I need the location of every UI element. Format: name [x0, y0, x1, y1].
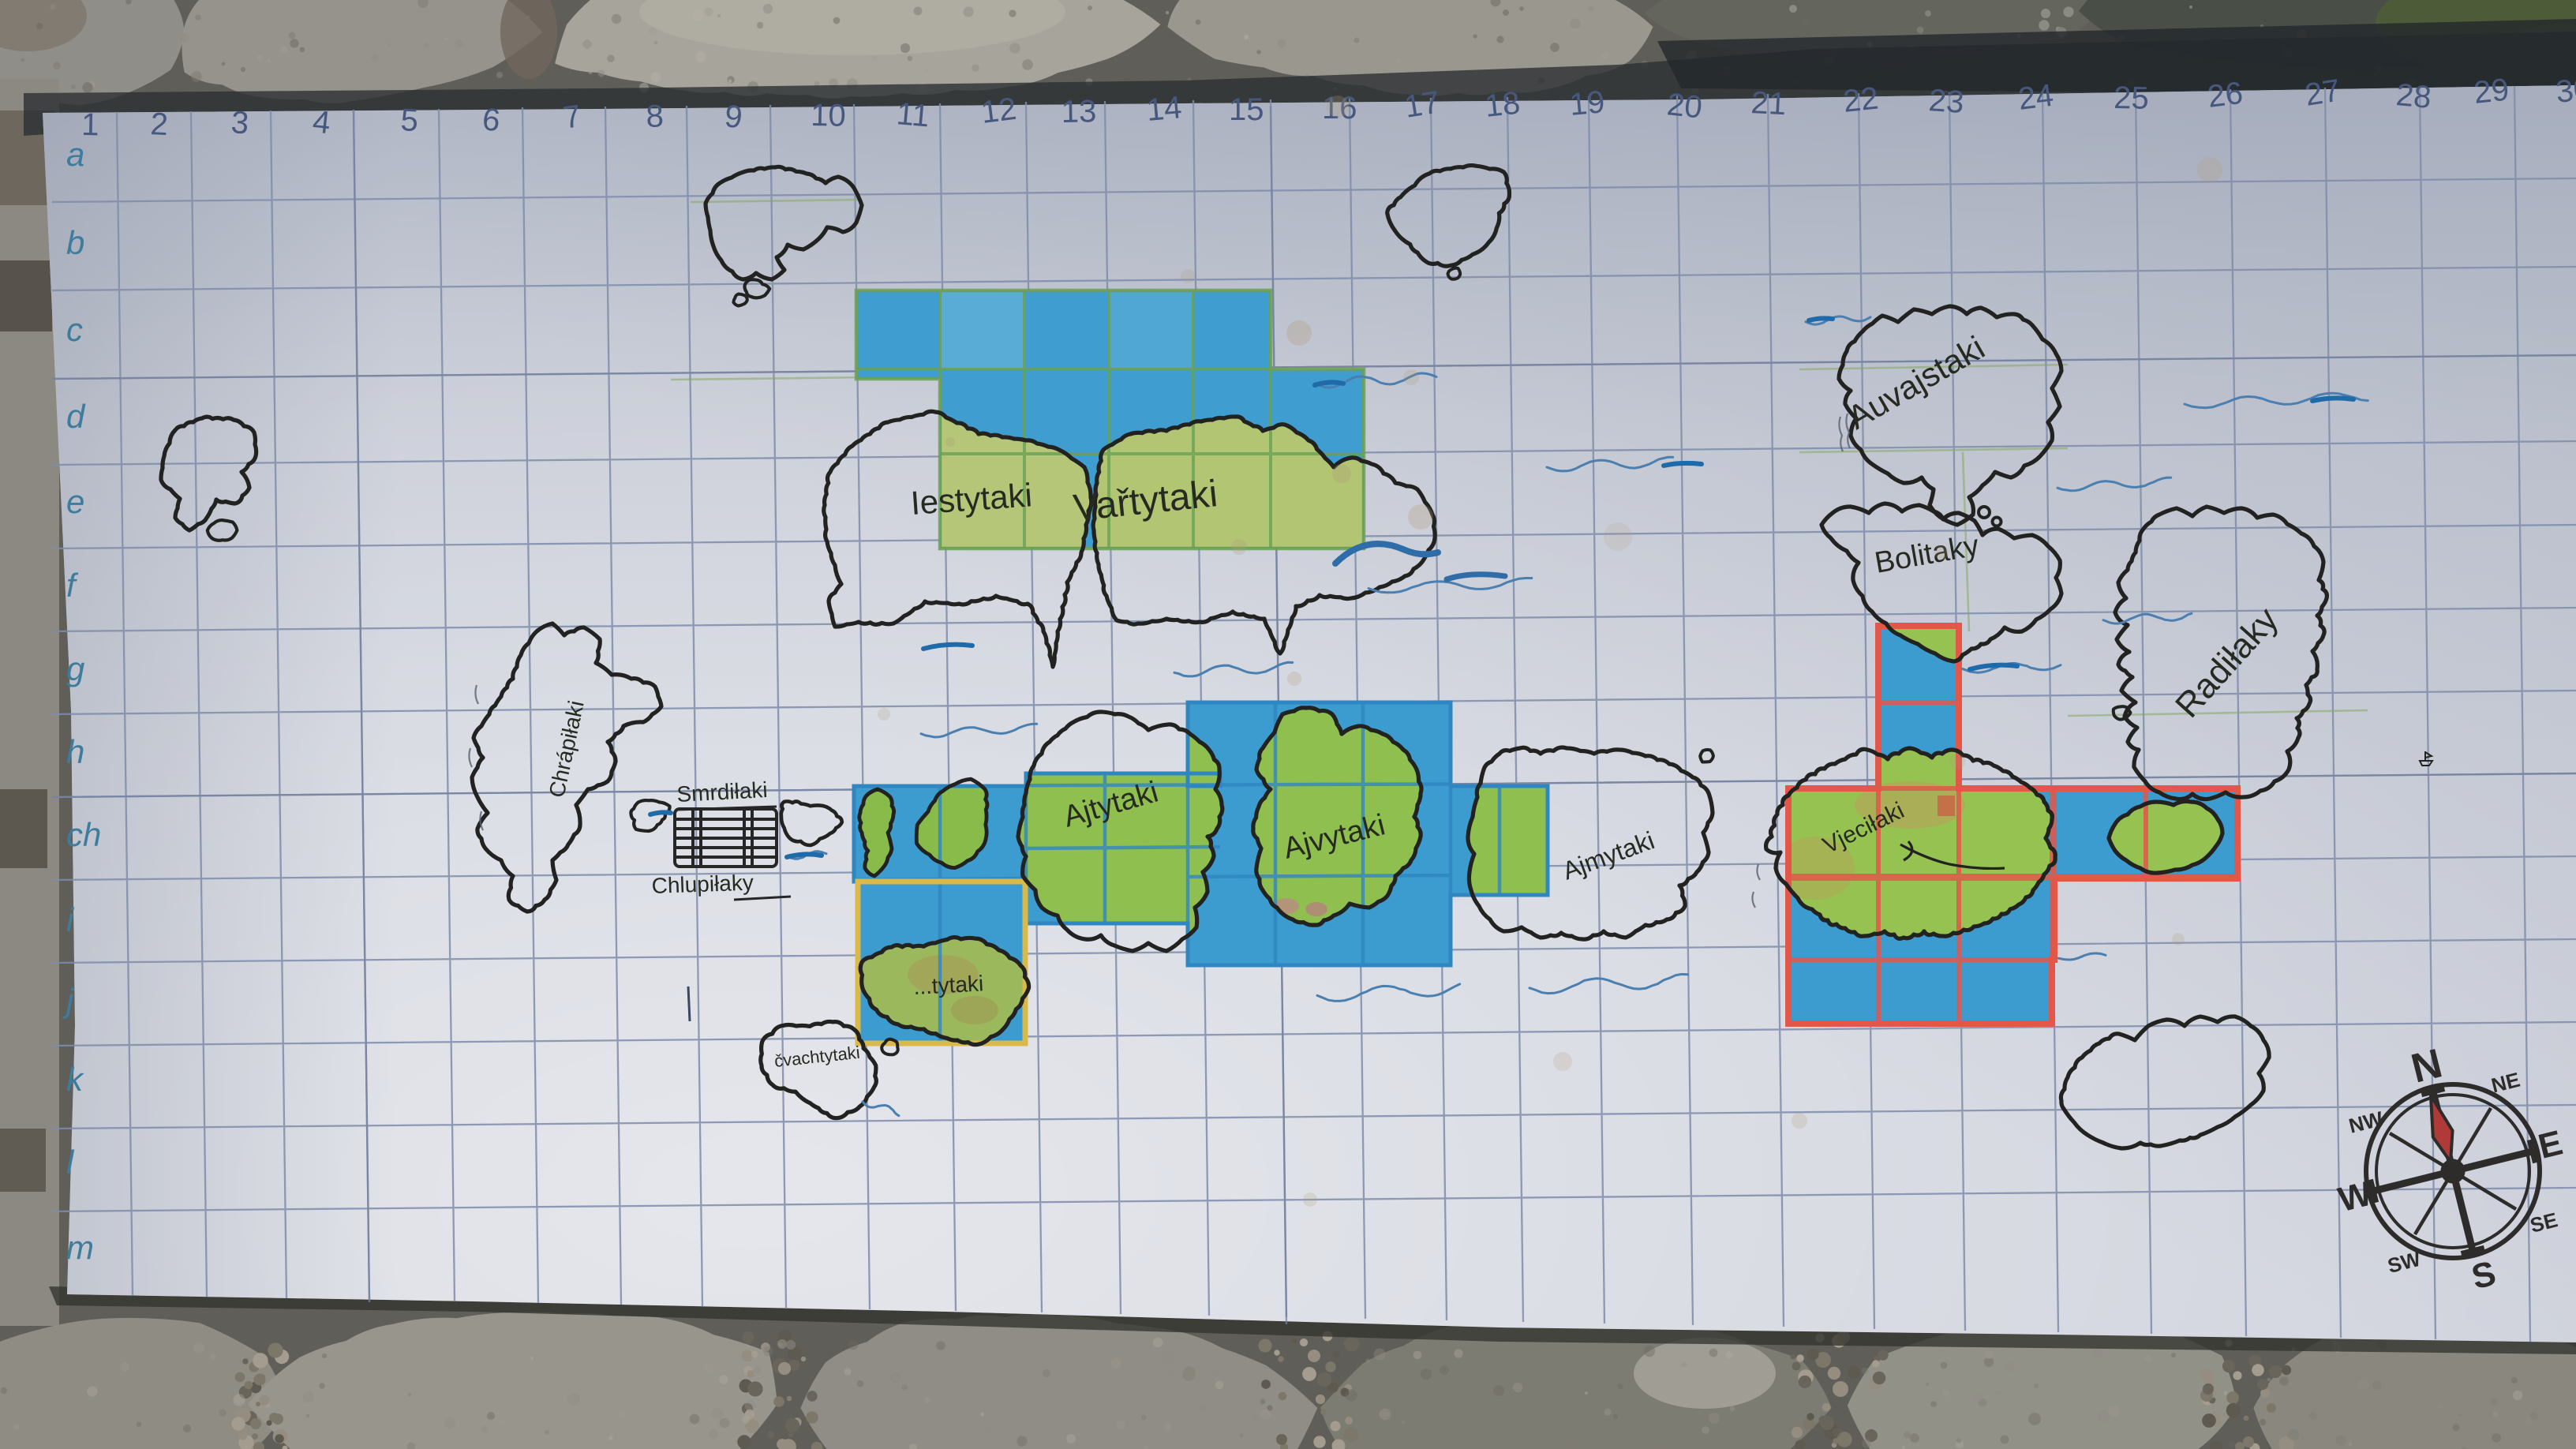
svg-text:b: b [66, 224, 84, 261]
svg-text:c: c [66, 311, 83, 348]
svg-text:2: 2 [150, 107, 170, 142]
svg-text:18: 18 [1483, 86, 1522, 124]
svg-text:4: 4 [311, 104, 332, 140]
svg-text:h: h [66, 733, 84, 770]
svg-text:19: 19 [1568, 84, 1606, 122]
svg-text:27: 27 [2303, 73, 2343, 112]
svg-text:8: 8 [646, 99, 665, 134]
svg-text:20: 20 [1665, 87, 1704, 125]
svg-text:15: 15 [1229, 92, 1264, 127]
svg-text:29: 29 [2472, 73, 2510, 110]
svg-text:e: e [66, 483, 84, 520]
svg-text:21: 21 [1750, 85, 1788, 122]
svg-text:28: 28 [2394, 77, 2432, 115]
svg-text:a: a [66, 136, 84, 173]
svg-text:14: 14 [1145, 90, 1183, 128]
svg-text:11: 11 [895, 96, 930, 133]
svg-text:13: 13 [1061, 94, 1096, 129]
svg-text:m: m [66, 1229, 94, 1266]
svg-text:26: 26 [2206, 76, 2245, 114]
svg-text:k: k [66, 1061, 84, 1098]
svg-text:10: 10 [811, 98, 846, 133]
svg-text:...tytaki: ...tytaki [913, 971, 984, 999]
svg-text:6: 6 [481, 102, 502, 138]
svg-text:17: 17 [1402, 84, 1443, 124]
svg-text:ch: ch [66, 816, 101, 853]
svg-text:Chlupiłaky: Chlupiłaky [651, 871, 754, 898]
svg-text:12: 12 [979, 92, 1019, 130]
svg-text:23: 23 [1927, 83, 1964, 120]
svg-text:25: 25 [2114, 80, 2149, 116]
svg-text:d: d [66, 398, 86, 435]
svg-text:3: 3 [230, 105, 249, 140]
svg-text:Smrdiłaki: Smrdiłaki [676, 777, 769, 807]
svg-text:5: 5 [400, 103, 420, 138]
svg-text:22: 22 [1841, 81, 1880, 119]
svg-text:g: g [66, 650, 84, 687]
svg-text:30: 30 [2554, 72, 2576, 110]
svg-text:9: 9 [723, 99, 744, 135]
svg-text:24: 24 [2016, 78, 2056, 117]
